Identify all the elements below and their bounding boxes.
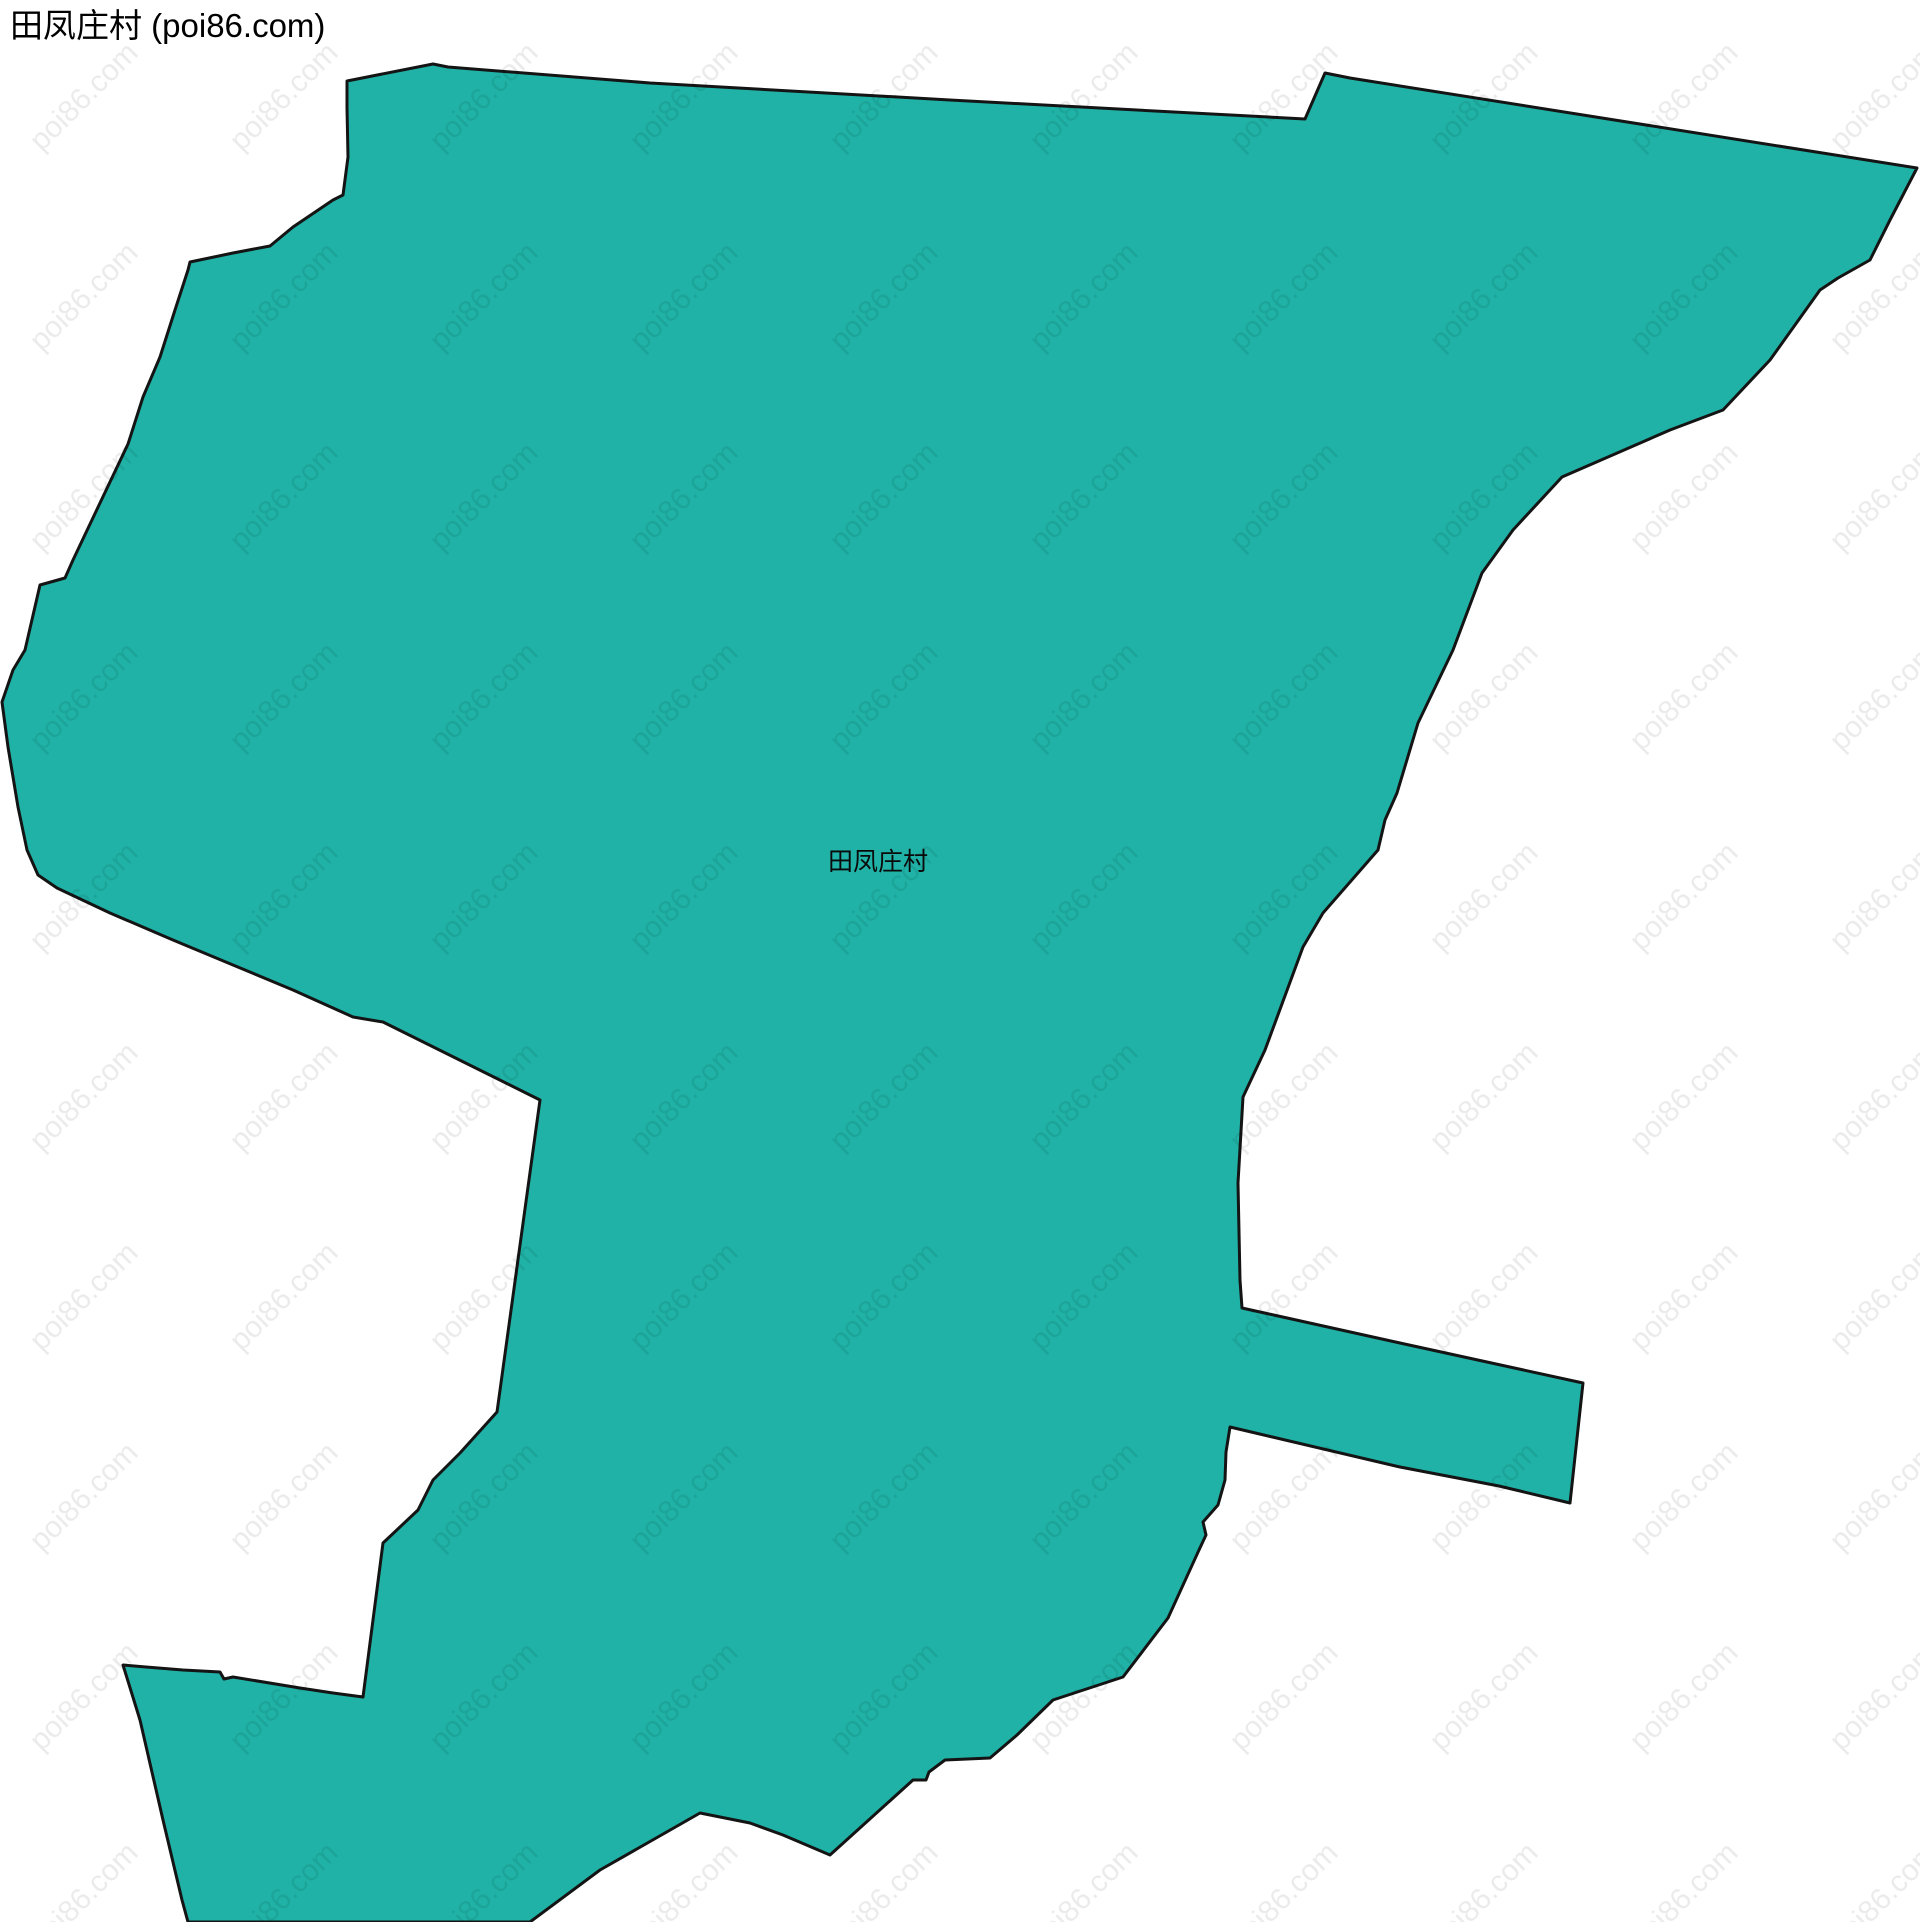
village-boundary-map bbox=[0, 0, 1920, 1922]
village-boundary-polygon bbox=[2, 64, 1917, 1922]
page-title: 田凤庄村 (poi86.com) bbox=[10, 6, 325, 46]
map-page: poi86.compoi86.compoi86.compoi86.compoi8… bbox=[0, 0, 1920, 1922]
region-label: 田凤庄村 bbox=[828, 842, 928, 878]
